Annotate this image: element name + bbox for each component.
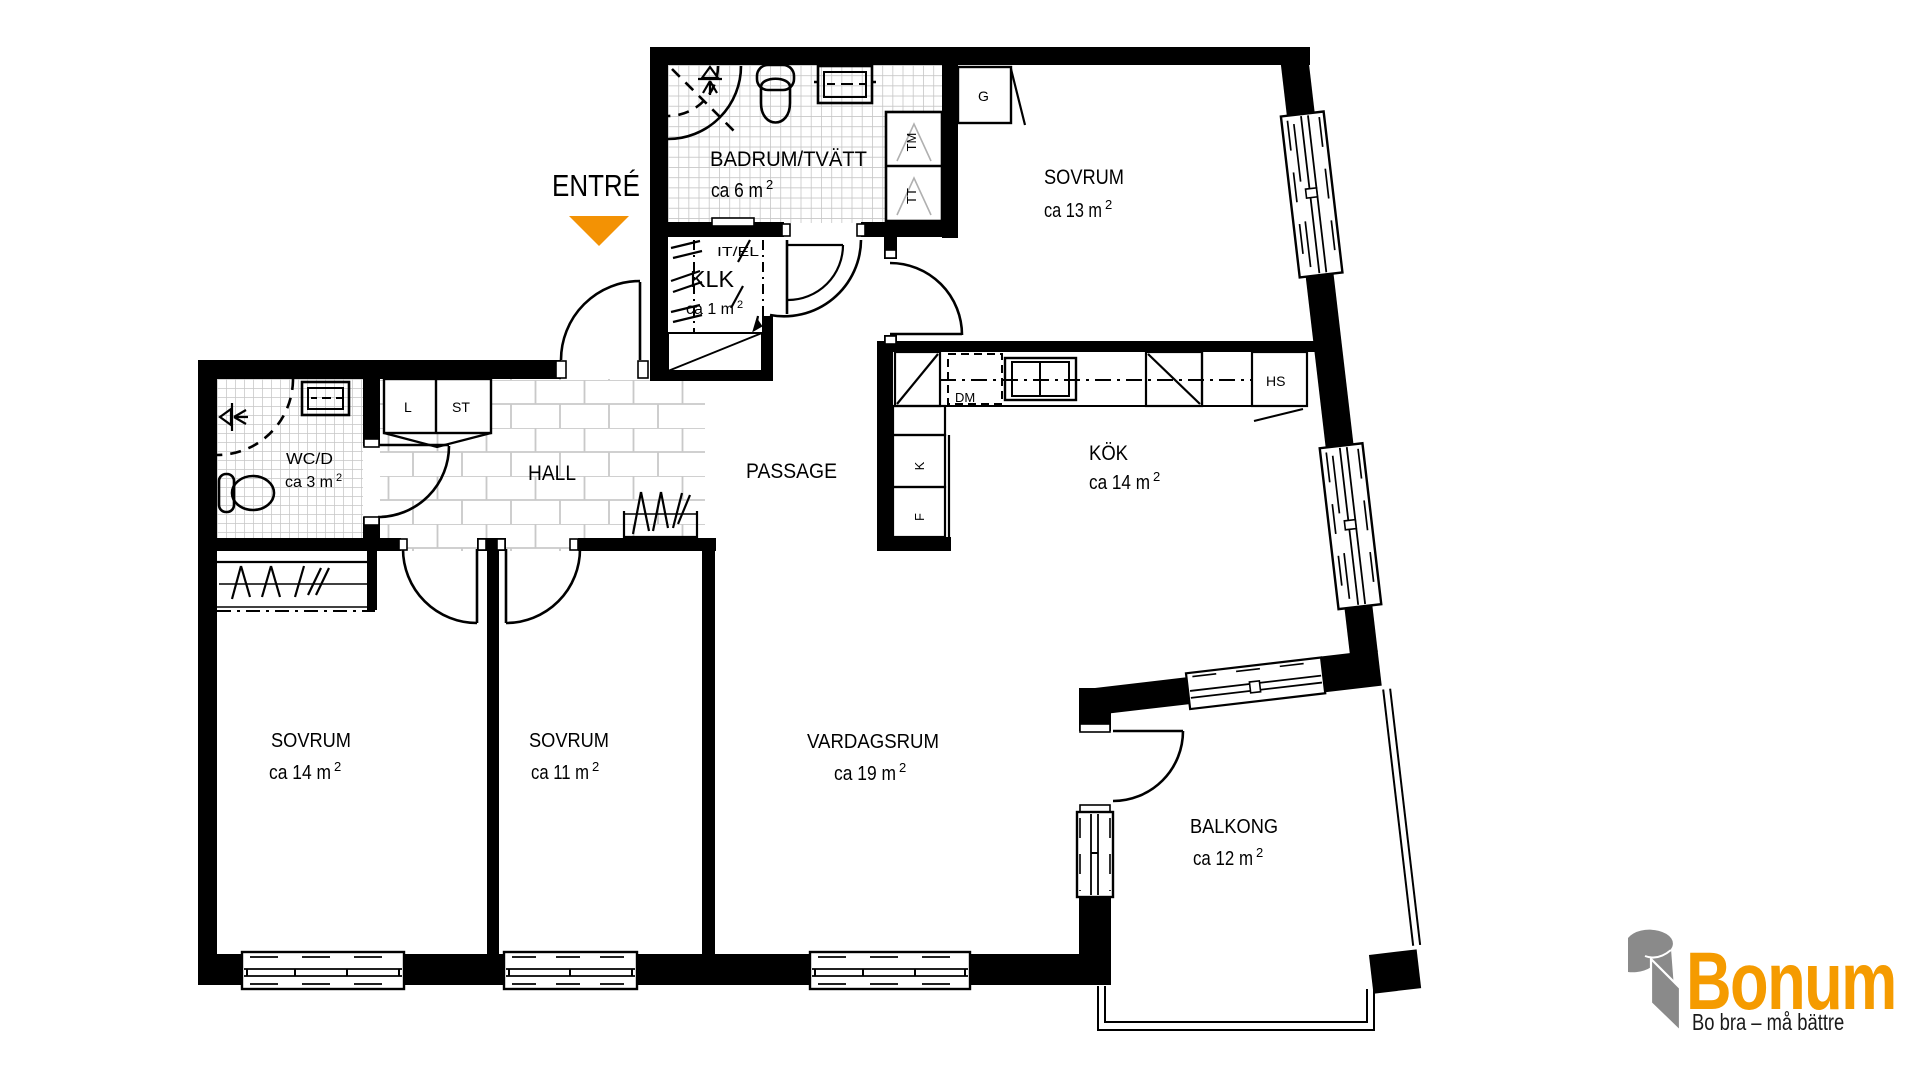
svg-text:2: 2 xyxy=(334,759,341,774)
svg-text:2: 2 xyxy=(336,472,342,484)
svg-text:HS: HS xyxy=(1266,373,1285,389)
svg-text:ca 12 m: ca 12 m xyxy=(1193,848,1253,870)
svg-text:PASSAGE: PASSAGE xyxy=(746,460,837,483)
svg-text:2: 2 xyxy=(592,759,599,774)
svg-text:TM: TM xyxy=(904,133,919,152)
svg-text:SOVRUM: SOVRUM xyxy=(271,730,351,752)
svg-text:HALL: HALL xyxy=(528,462,576,485)
svg-text:2: 2 xyxy=(766,177,773,192)
svg-text:Bo bra – må bättre: Bo bra – må bättre xyxy=(1692,1010,1844,1035)
svg-text:ST: ST xyxy=(452,399,470,415)
svg-text:ca 14 m: ca 14 m xyxy=(269,762,331,784)
svg-text:ca 3 m: ca 3 m xyxy=(285,474,333,491)
svg-text:BADRUM/TVÄTT: BADRUM/TVÄTT xyxy=(710,148,867,171)
svg-text:IT/EL: IT/EL xyxy=(717,244,759,259)
svg-text:KÖK: KÖK xyxy=(1089,442,1128,465)
svg-text:TT: TT xyxy=(904,188,919,204)
svg-text:KLK: KLK xyxy=(690,266,735,292)
svg-text:L: L xyxy=(404,399,412,415)
svg-text:2: 2 xyxy=(899,760,906,775)
svg-text:ca 19 m: ca 19 m xyxy=(834,763,896,785)
svg-text:SOVRUM: SOVRUM xyxy=(1044,166,1124,189)
svg-text:2: 2 xyxy=(1153,469,1160,484)
svg-text:ca 14 m: ca 14 m xyxy=(1089,472,1150,494)
svg-text:ENTRÉ: ENTRÉ xyxy=(552,168,640,203)
svg-text:WC/D: WC/D xyxy=(286,451,333,468)
svg-text:ca 13 m: ca 13 m xyxy=(1044,200,1102,222)
svg-text:G: G xyxy=(978,88,989,104)
svg-text:2: 2 xyxy=(1256,845,1263,860)
svg-text:BALKONG: BALKONG xyxy=(1190,816,1278,838)
svg-text:VARDAGSRUM: VARDAGSRUM xyxy=(807,731,939,753)
svg-text:DM: DM xyxy=(955,390,975,405)
svg-text:K: K xyxy=(912,461,927,470)
svg-text:SOVRUM: SOVRUM xyxy=(529,730,609,752)
svg-text:2: 2 xyxy=(1105,197,1112,212)
svg-text:ca 1 m: ca 1 m xyxy=(686,301,734,318)
svg-text:ca 11 m: ca 11 m xyxy=(531,762,589,784)
svg-text:ca 6 m: ca 6 m xyxy=(711,180,763,202)
svg-text:F: F xyxy=(912,513,927,521)
svg-text:2: 2 xyxy=(737,299,743,311)
